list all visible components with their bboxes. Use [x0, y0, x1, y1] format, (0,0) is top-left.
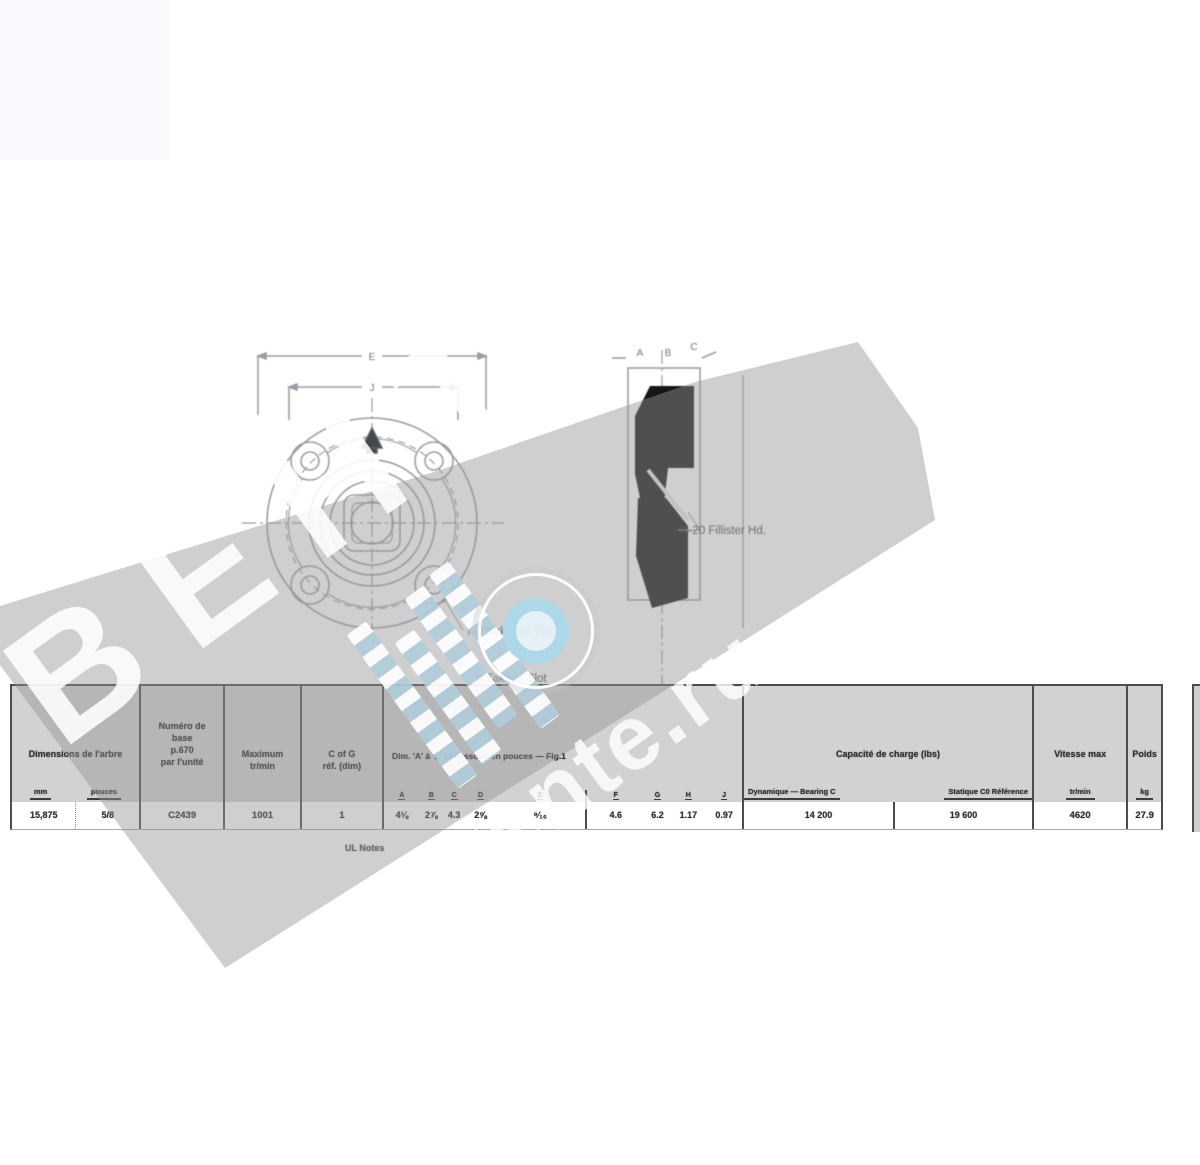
bearing-technical-drawing: E J A B C — [0, 0, 1200, 1165]
column-cofg: C of G réf. (dim) 1 — [302, 686, 384, 829]
dim-letter: F — [613, 792, 619, 800]
dim-value: 6.2 — [645, 802, 671, 829]
cofg-value: 1 — [302, 802, 382, 829]
load-value-dynamic: 14 200 — [744, 802, 893, 829]
rpm-header-line2: tr/min — [250, 760, 275, 772]
dim-value: ⁹⁄₁₆ — [495, 802, 585, 829]
annotation-thickness: ⅞ Thickness Thru — [466, 626, 557, 638]
shaft-sub-in: pouces — [87, 786, 121, 800]
dim-value: 4⅛ — [384, 802, 420, 829]
column-max-rpm: Maximum tr/min 1001 — [225, 686, 301, 829]
weight-value: 27.9 — [1128, 802, 1161, 829]
column-load-rating: Capacité de charge (lbs) Dynamique — Bea… — [744, 686, 1034, 829]
dim-label-a: A — [637, 348, 644, 359]
dim-letter: B — [428, 792, 435, 800]
weight-sub: kg — [1136, 786, 1153, 800]
column-shaft-dimensions: Dimensions de l'arbre mm pouces 15,875 5… — [12, 686, 141, 829]
speed-sub: tr/min — [1066, 786, 1095, 800]
shaft-header: Dimensions de l'arbre — [29, 748, 123, 760]
cofg-header-line2: réf. (dim) — [323, 760, 362, 772]
adjacent-table-edge — [1192, 684, 1200, 832]
dim-letter: C — [451, 792, 458, 800]
dim-value: 1.17 — [670, 802, 706, 829]
dim-label-b: B — [665, 348, 672, 359]
dims-group-header: Dim. 'A' à 'L' ci-dessous en pouces — Fi… — [392, 750, 566, 762]
bearing-value: C2439 — [141, 802, 223, 829]
annotation-fillister: ¼-20 Fillister Hd. — [679, 525, 766, 537]
specification-table: Dimensions de l'arbre mm pouces 15,875 5… — [10, 684, 1163, 830]
dim-label-inner: J — [370, 383, 375, 394]
bearing-header-line4: par l'unité — [161, 756, 204, 768]
rpm-value: 1001 — [225, 802, 299, 829]
dim-value: 0.97 — [706, 802, 742, 829]
rpm-header-line1: Maximum — [242, 748, 284, 760]
shaft-value-mm: 15,875 — [12, 802, 75, 829]
load-header: Capacité de charge (lbs) — [836, 748, 940, 760]
shaft-sub-mm: mm — [30, 786, 51, 800]
catalog-page: E J A B C ¼-20 Fillister Hd. ⅞ Thickness… — [0, 0, 1200, 1165]
column-group-dimensions: Dim. 'A' à 'L' ci-dessous en pouces — Fi… — [384, 686, 744, 829]
dim-letter: D — [477, 792, 484, 800]
shaft-value-in: 5/8 — [75, 802, 138, 829]
column-speed: Vitesse max tr/min 4620 — [1034, 686, 1128, 829]
front-view — [242, 353, 504, 650]
bearing-header-line2: base — [172, 732, 193, 744]
load-value-static: 19 600 — [893, 802, 1032, 829]
dim-letter: H — [685, 792, 692, 800]
dim-letter: A — [398, 792, 405, 800]
speed-header: Vitesse max — [1054, 748, 1106, 760]
column-weight: Poids kg 27.9 — [1128, 686, 1161, 829]
grease-fitting-icon — [362, 428, 382, 453]
dim-letter: E — [537, 792, 544, 800]
table-footnote: UL Notes — [345, 843, 384, 853]
dim-value: 2⅞ — [420, 802, 443, 829]
bearing-header-line3: p.670 — [171, 744, 194, 756]
load-sub-static: Statique C0 Référence — [944, 786, 1032, 800]
cofg-header-line1: C of G — [328, 748, 355, 760]
dim-value: 2⅝ — [466, 802, 496, 829]
dim-letter: J — [721, 792, 727, 800]
bearing-header-line1: Numéro de — [159, 720, 206, 732]
dim-value: 4.6 — [585, 802, 645, 829]
dim-value: 4.3 — [443, 802, 466, 829]
dim-label-c: C — [690, 342, 697, 353]
dim-label-outer: E — [369, 352, 376, 363]
speed-value: 4620 — [1034, 802, 1126, 829]
column-bearing-number: Numéro de base p.670 par l'unité C2439 — [141, 686, 225, 829]
dim-letter: G — [654, 792, 661, 800]
weight-header: Poids — [1132, 748, 1157, 760]
load-sub-dynamic: Dynamique — Bearing C — [744, 786, 840, 800]
